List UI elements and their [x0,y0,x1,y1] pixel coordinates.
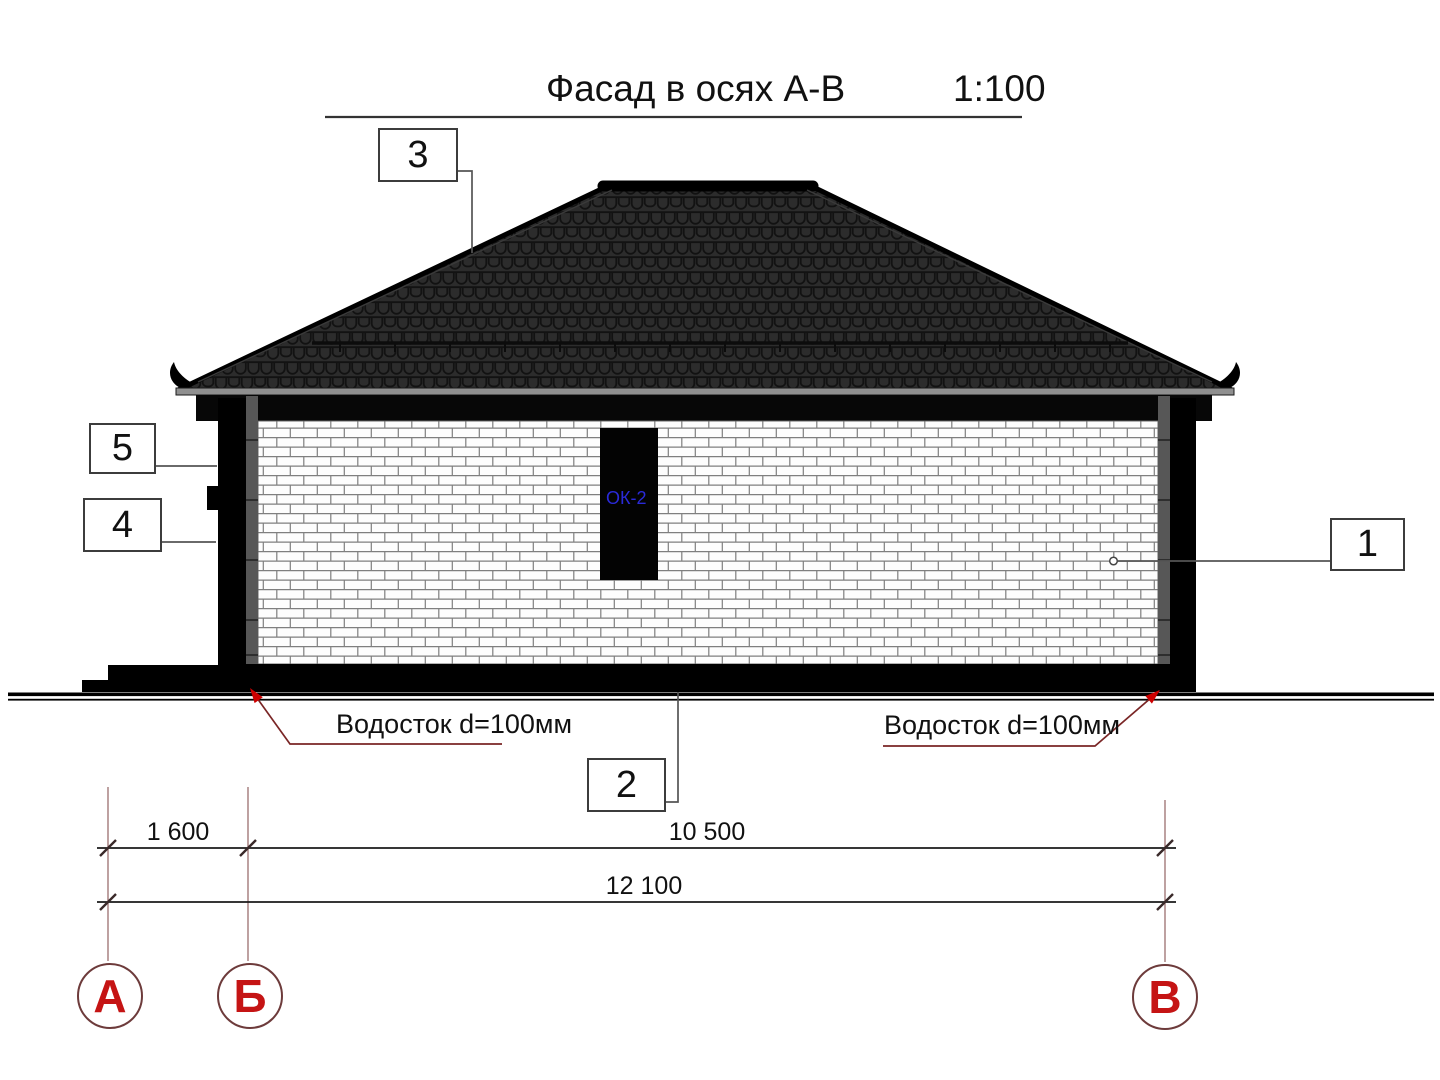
downspout-label-right: Водосток d=100мм [884,712,1120,739]
callout-1-label: 1 [1357,523,1378,566]
left-corner-pilaster [218,398,246,692]
callout-2-plinth: 2 [587,758,666,812]
left-eave-finial [170,362,194,390]
callout-3-label: 3 [407,134,428,177]
callout-5: 5 [89,423,156,474]
right-eave-finial [1216,362,1240,390]
callout-5-label: 5 [112,427,133,470]
axis-bubble-v: В [1132,964,1198,1030]
callout-2-label: 2 [616,764,637,807]
entry-steps [82,665,220,692]
right-downpipe [1158,396,1170,692]
drawing-title: Фасад в осях А-В [546,70,845,107]
facade-drawing-canvas: Фасад в осях А-В 1:100 3 5 4 1 2 ОК-2 Во… [0,0,1440,1080]
left-downpipe [246,396,258,692]
ground-line [8,693,1434,701]
callout-4-label: 4 [112,504,133,547]
drawing-scale: 1:100 [953,70,1046,107]
wall-bracket [207,486,219,510]
hip-roof [170,184,1240,390]
dimension-total-a-v: 12 100 [606,874,682,899]
axis-bubble-b: Б [217,963,283,1029]
gutter [176,388,1234,395]
plinth [218,664,1196,692]
downspout-label-left: Водосток d=100мм [336,711,572,738]
facade-drawing-graphics [0,0,1440,1080]
dimension-a-b: 1 600 [147,820,210,845]
callout-1: 1 [1330,518,1405,571]
axis-letter-a: А [93,969,126,1023]
callout-3-roof: 3 [378,128,458,182]
axis-letter-v: В [1148,970,1181,1024]
eaves-fascia [196,395,1212,421]
brick-wall [258,421,1158,664]
callout-4: 4 [83,498,162,552]
leader-1-endpoint [1110,557,1118,565]
right-corner-pilaster [1170,398,1196,692]
axis-letter-b: Б [233,969,266,1023]
dimension-b-v: 10 500 [669,820,745,845]
axis-bubble-a: А [77,963,143,1029]
window-tag-ok2: ОК-2 [606,489,647,507]
